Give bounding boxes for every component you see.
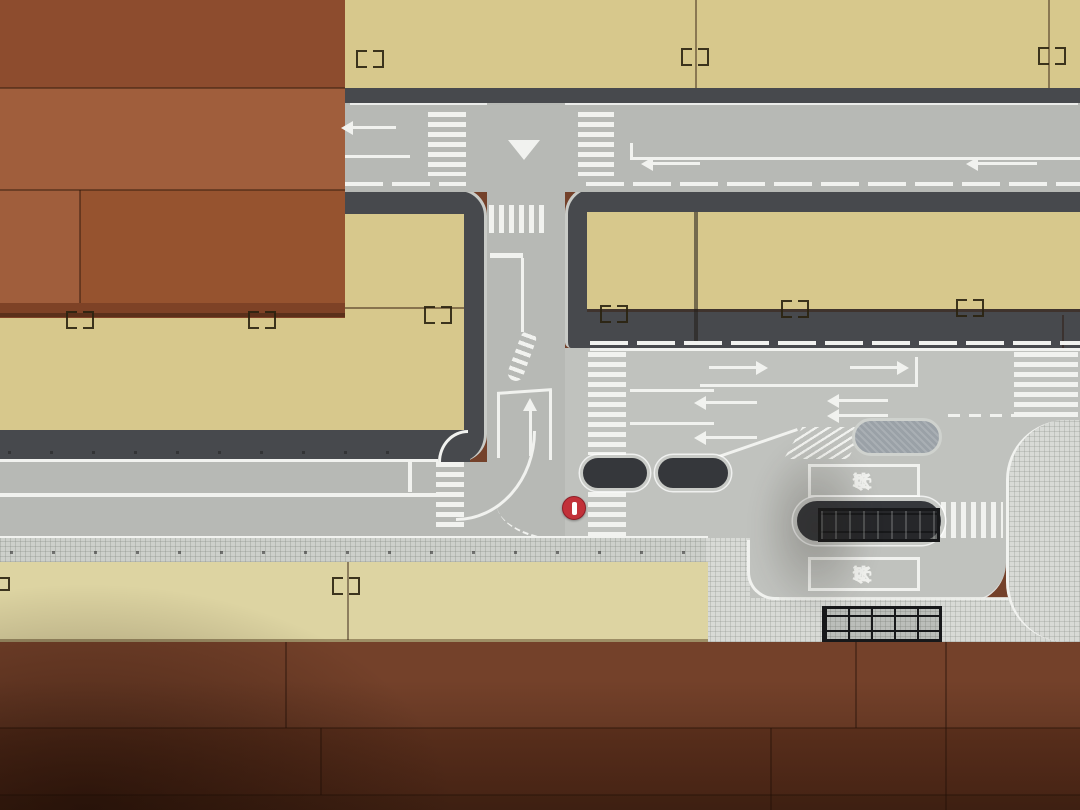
plate-seam [694, 212, 698, 345]
blank-plate-bottom-strip [0, 562, 708, 642]
sidewalk-post-dots [10, 551, 700, 554]
lane-arrow-east [709, 366, 757, 369]
guardrail-line [590, 341, 1080, 345]
blank-plate-right-row [587, 212, 1080, 309]
crosswalk-bus-stop [941, 502, 1003, 538]
center-line [345, 155, 410, 158]
pedestrian-island-1 [580, 455, 650, 491]
blank-plate-top-row [345, 0, 1080, 89]
road-edge-line [0, 459, 438, 462]
lane-line [700, 384, 918, 387]
plank-seam [320, 728, 322, 795]
lane-arrow-west [977, 162, 1037, 165]
plate-clip [956, 299, 984, 315]
floor-plank [0, 635, 1080, 728]
plate-clip [424, 306, 452, 322]
lane-arrow-west [352, 126, 396, 129]
floor-plank [0, 0, 345, 88]
plate-seam [587, 309, 1080, 312]
plank-seam [945, 640, 947, 810]
lane-line [630, 389, 714, 392]
lane-line-dashed [948, 414, 1024, 417]
plate-clip [1038, 47, 1066, 63]
center-line [0, 493, 436, 497]
floor-plank [0, 795, 1080, 810]
plate-seam [1048, 0, 1050, 88]
lane-arrow-east [850, 366, 898, 369]
plate-clip [681, 48, 709, 64]
hand-shadow-overlay [730, 400, 900, 655]
turn-pocket-line [549, 390, 552, 460]
stop-line [408, 462, 412, 492]
crosswalk-far-right [1014, 352, 1078, 418]
blank-plate-mid-left [0, 318, 345, 430]
lane-arrow-west [705, 401, 757, 404]
lane-arrow-west [652, 162, 700, 165]
no-entry-road-sign [562, 496, 586, 520]
crosswalk-top-left [428, 112, 466, 176]
plate-seam [347, 562, 349, 640]
floor-plank [0, 190, 80, 303]
guardrail-line [586, 182, 1080, 186]
south-sidewalk-strip [0, 536, 708, 562]
plank-seam [770, 728, 772, 810]
top-road-north-curb [345, 88, 1080, 103]
plate-clip [356, 50, 384, 66]
plank-seam [285, 640, 287, 728]
plank-seam [855, 640, 857, 728]
lane-line [630, 422, 714, 425]
photo-toy-road-layout: バ ス 停 バ ス 停 [0, 0, 1080, 810]
plate-seam [695, 0, 697, 88]
plate-clip [332, 577, 360, 593]
lane-arrow-west [705, 436, 757, 439]
plate-clip [248, 311, 276, 327]
plate-clip [66, 311, 94, 327]
guardrail-line [345, 182, 466, 186]
yield-triangle-marking [508, 140, 540, 160]
plate-clip [600, 305, 628, 321]
curb-band-left-road [0, 430, 470, 462]
crosswalk-vertical-road [489, 205, 545, 233]
lane-line-stub [915, 357, 918, 386]
plate-seam [0, 313, 345, 317]
center-line [521, 258, 524, 332]
plank-seam [0, 87, 345, 89]
lane-arrow-west [838, 399, 888, 402]
plate-clip [781, 300, 809, 316]
curb-post-dots [8, 451, 423, 454]
plank-seam [0, 189, 345, 191]
sidewalk-edge-line [350, 103, 1078, 105]
crosswalk-mid-upper [588, 352, 626, 455]
center-line [632, 157, 1080, 160]
pedestrian-island-2 [655, 455, 731, 491]
plaza-bulge [1006, 420, 1080, 642]
floor-plank [0, 728, 1080, 795]
stop-line [490, 253, 523, 258]
crosswalk-top-right [578, 112, 614, 176]
crosswalk-mid-lower [588, 492, 626, 536]
plank-seam [79, 190, 81, 303]
road-edge-line [590, 348, 1080, 351]
plank-seam [0, 794, 1080, 796]
plank-seam [0, 727, 1080, 729]
plate-clip [0, 577, 10, 591]
floor-plank [0, 88, 345, 190]
left-road [0, 462, 487, 538]
